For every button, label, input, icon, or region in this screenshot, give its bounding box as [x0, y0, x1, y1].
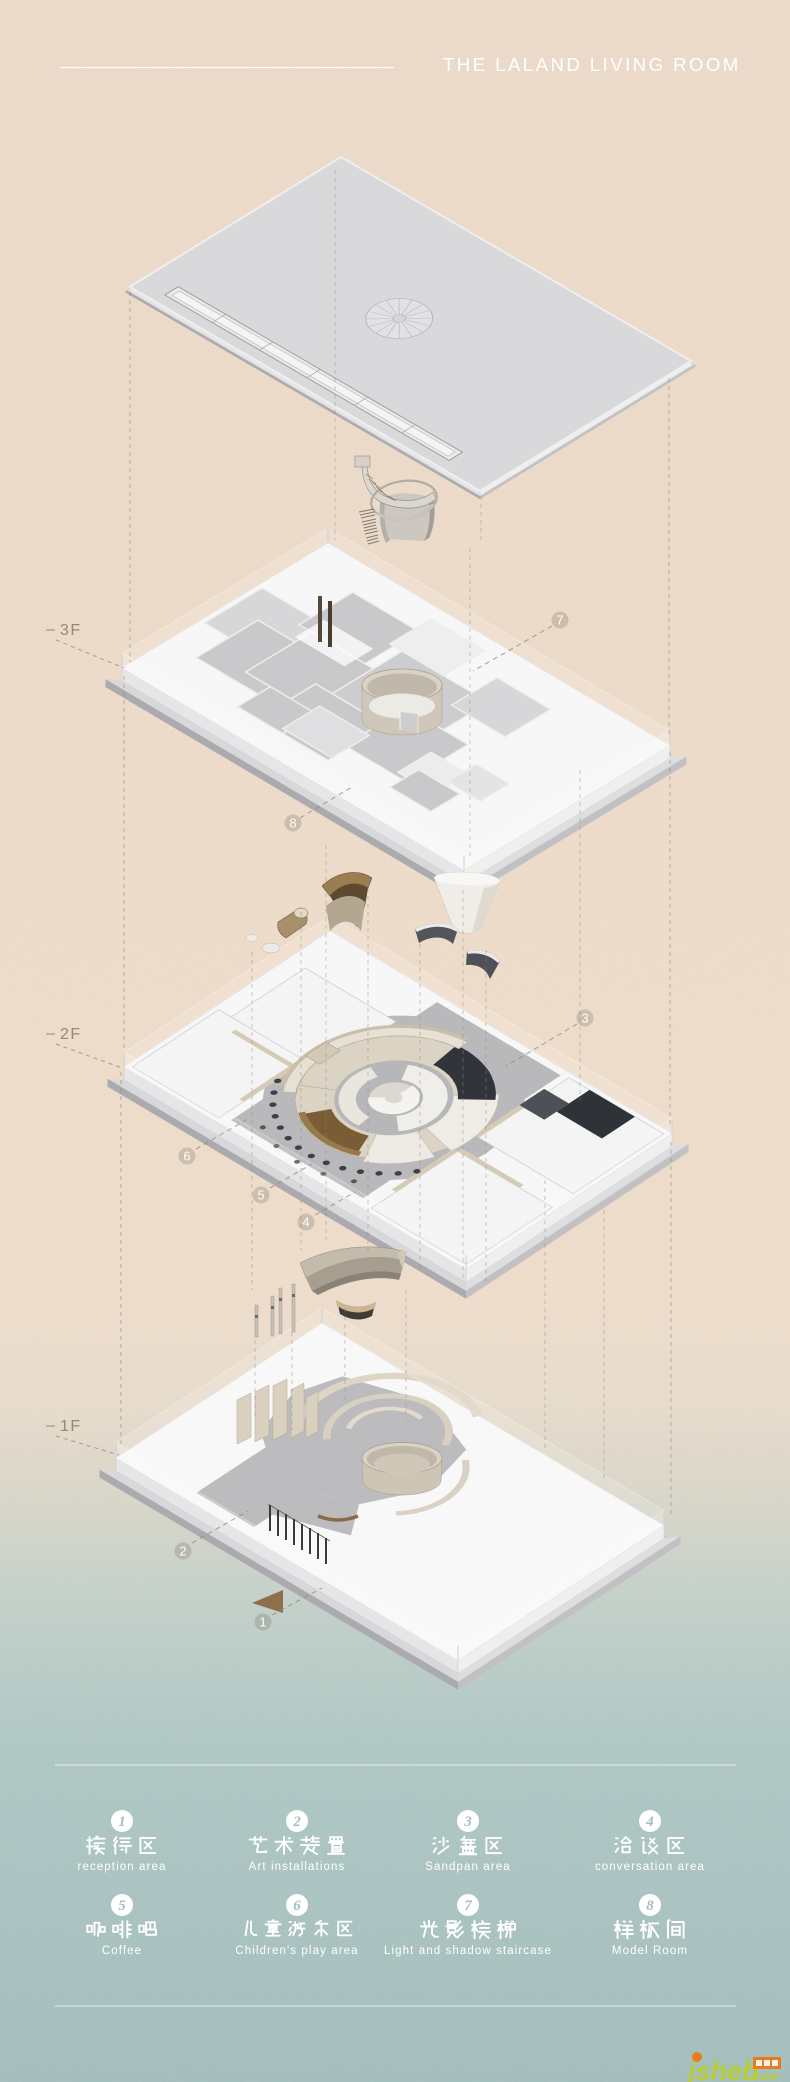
svg-text:.com: .com	[753, 2071, 779, 2082]
svg-text:5: 5	[257, 1188, 264, 1203]
svg-text:1F: 1F	[60, 1418, 82, 1435]
svg-text:5: 5	[118, 1898, 126, 1914]
svg-text:Sandpan area: Sandpan area	[425, 1861, 510, 1873]
svg-text:7: 7	[464, 1898, 472, 1914]
svg-text:4: 4	[645, 1814, 654, 1830]
svg-text:2F: 2F	[60, 1026, 82, 1043]
svg-text:7: 7	[556, 613, 563, 628]
svg-text:3: 3	[463, 1814, 472, 1830]
svg-text:Coffee: Coffee	[102, 1945, 142, 1957]
svg-text:3: 3	[581, 1011, 588, 1026]
svg-text:8: 8	[646, 1898, 654, 1914]
svg-text:Art installations: Art installations	[249, 1861, 346, 1873]
svg-text:Light and shadow staircase: Light and shadow staircase	[384, 1945, 552, 1957]
svg-text:THE LALAND LIVING ROOM: THE LALAND LIVING ROOM	[443, 54, 741, 75]
svg-text:Model Room: Model Room	[612, 1945, 688, 1957]
svg-text:6: 6	[293, 1898, 301, 1914]
svg-text:Children's play area: Children's play area	[235, 1945, 358, 1957]
svg-text:conversation area: conversation area	[595, 1861, 705, 1873]
svg-text:8: 8	[289, 816, 296, 831]
svg-text:1: 1	[118, 1814, 126, 1830]
svg-text:6: 6	[183, 1149, 190, 1164]
svg-text:2: 2	[292, 1814, 301, 1830]
svg-text:4: 4	[302, 1215, 309, 1230]
svg-text:2: 2	[179, 1544, 186, 1559]
svg-text:reception area: reception area	[78, 1861, 167, 1873]
svg-text:3F: 3F	[60, 622, 82, 639]
svg-text:1: 1	[259, 1615, 266, 1630]
